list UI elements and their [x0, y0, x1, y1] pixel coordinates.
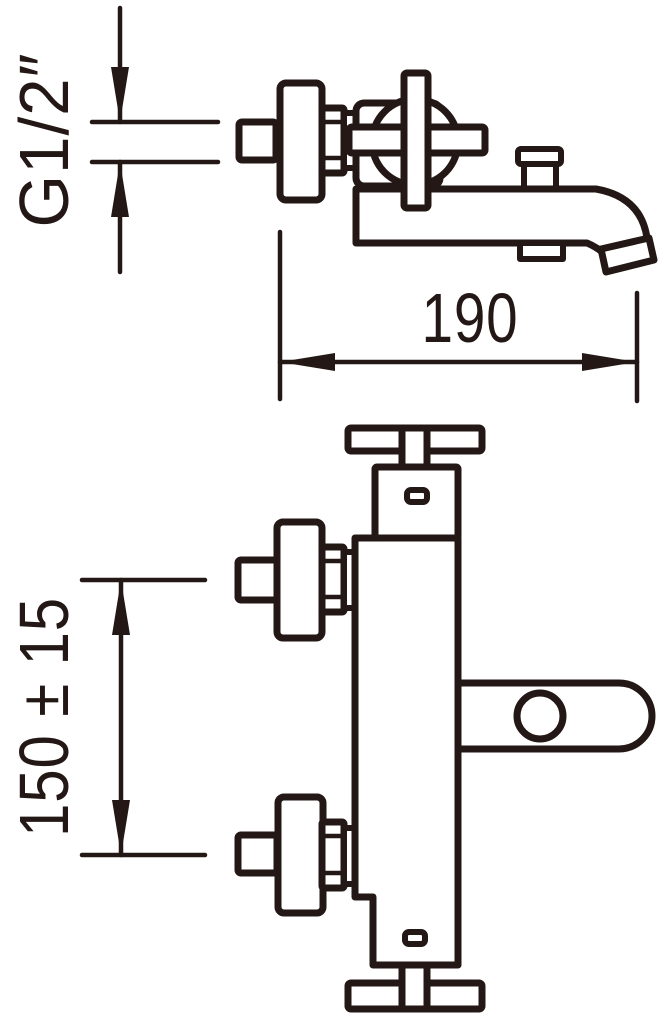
dim-inlet-spacing: 150 ± 15: [5, 580, 205, 855]
front-body-column: [355, 538, 458, 965]
technical-drawing-canvas: G1/2″ 190 150 ± 15: [0, 0, 666, 1020]
dim-thread-size: G1/2″: [5, 8, 218, 272]
dim-spout-reach: 190: [280, 232, 637, 401]
spacing-arrow-down: [112, 800, 130, 855]
technical-drawing-page: G1/2″ 190 150 ± 15: [0, 0, 666, 1020]
front-bottom-handle-arm: [402, 965, 427, 1009]
side-inlet-thread-end: [239, 122, 276, 160]
thread-dim-arrow-up: [111, 162, 129, 217]
side-inlet-hex-nut: [322, 108, 344, 173]
front-top-handle-arm: [402, 428, 427, 467]
front-upper-inlet-hex-nut: [322, 547, 344, 612]
side-view: [239, 73, 654, 272]
side-handle-bar-vertical: [404, 73, 428, 208]
inlet-spacing-label: 150 ± 15: [5, 597, 83, 837]
side-diverter-cap: [518, 149, 561, 164]
side-spout-notch: [520, 243, 563, 259]
front-lower-inlet-thread-end: [238, 835, 277, 873]
spacing-arrow-up: [112, 580, 130, 635]
front-lower-inlet-hex-nut: [322, 822, 344, 888]
side-inlet-flange: [280, 83, 322, 200]
reach-arrow-right: [582, 353, 637, 371]
thread-size-label: G1/2″: [5, 53, 83, 228]
front-view: [238, 428, 652, 1009]
spout-reach-label: 190: [422, 279, 519, 357]
reach-arrow-left: [280, 353, 335, 371]
front-spout-outlet-circle: [517, 693, 563, 739]
thread-dim-arrow-down: [111, 67, 129, 122]
front-upper-inlet-flange: [277, 522, 322, 638]
front-bottom-housing-slot: [405, 932, 425, 944]
front-lower-inlet-flange: [278, 797, 323, 913]
front-top-housing-slot: [407, 490, 427, 502]
front-upper-inlet-thread-end: [238, 560, 277, 600]
